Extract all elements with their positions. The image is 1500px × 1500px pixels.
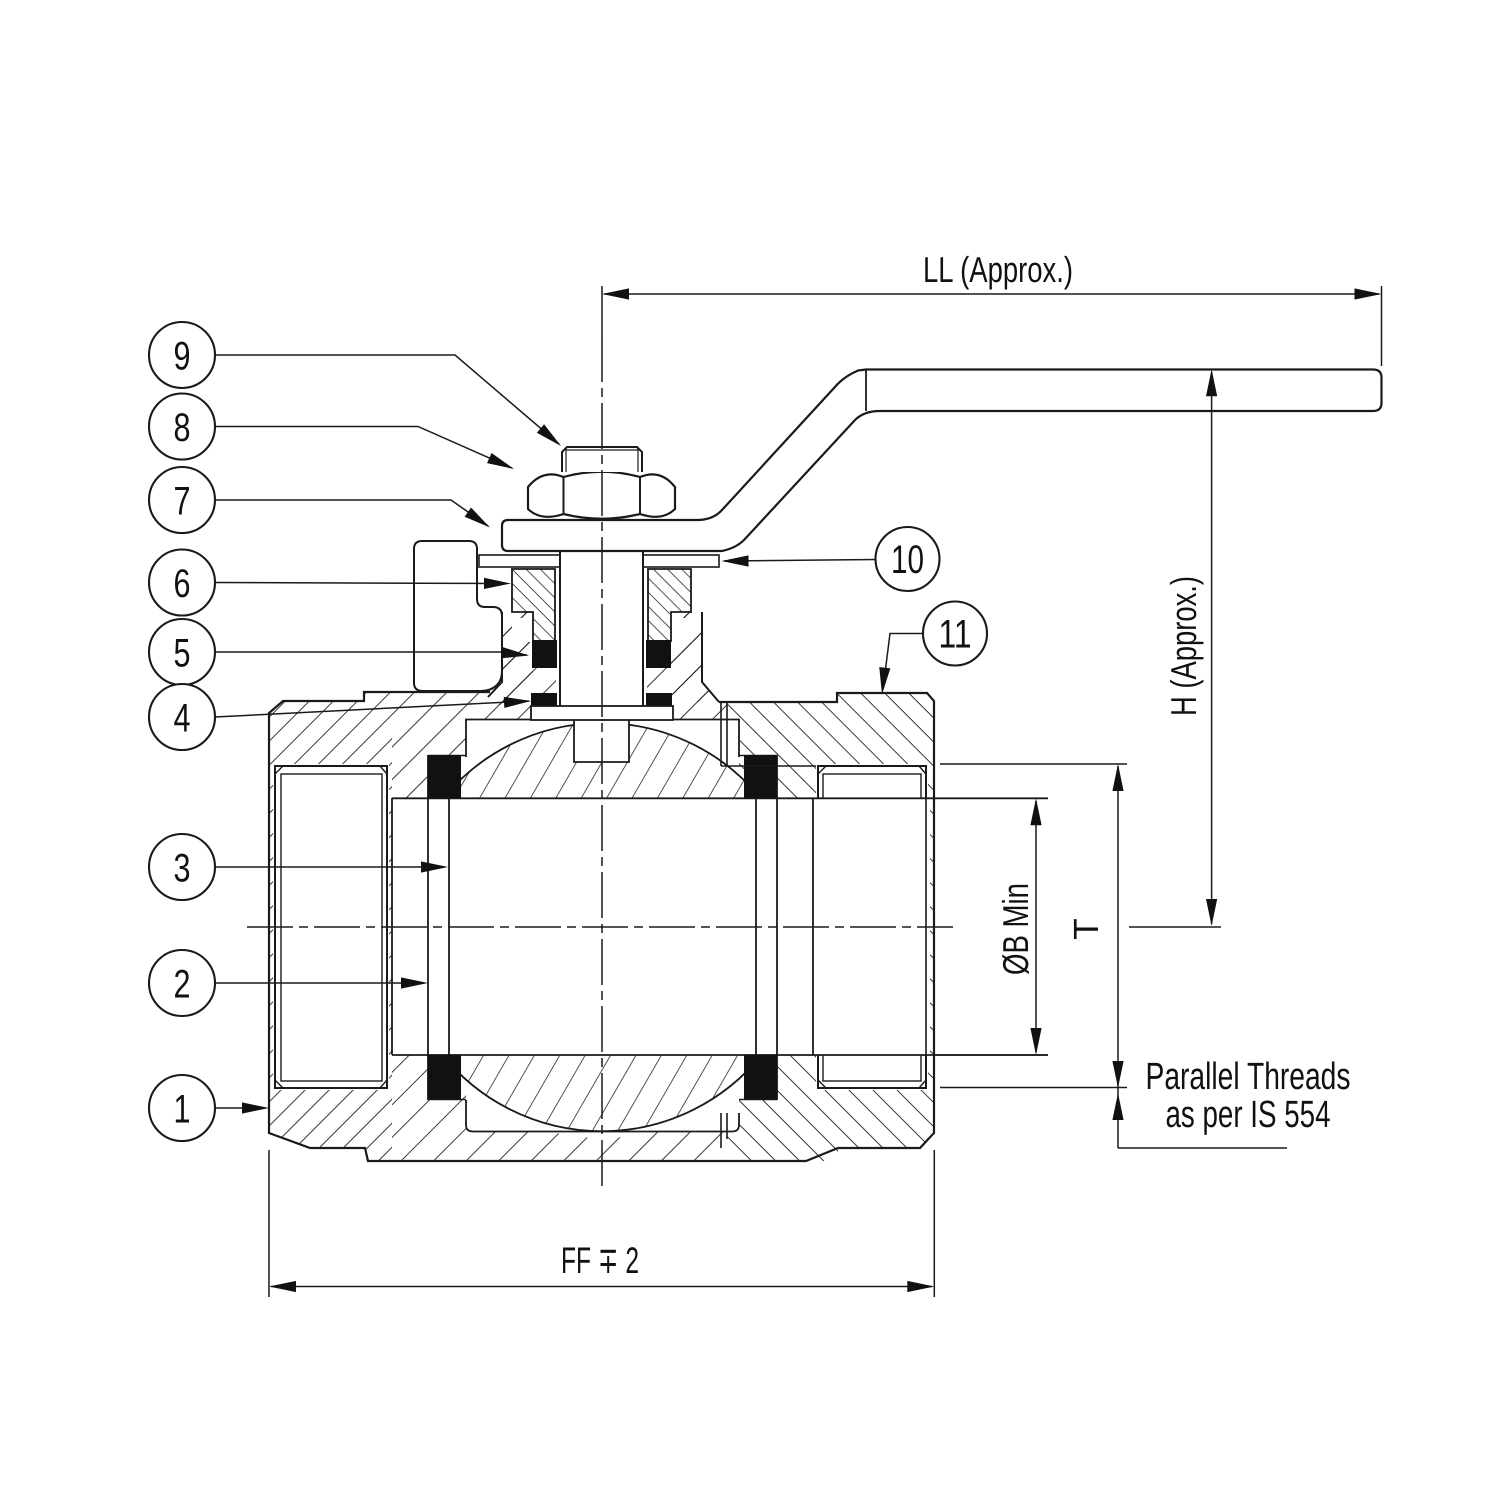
svg-text:LL (Approx.): LL (Approx.) — [923, 249, 1073, 290]
svg-text:as per IS 554: as per IS 554 — [1166, 1094, 1331, 1136]
svg-text:4: 4 — [174, 697, 191, 741]
svg-text:7: 7 — [174, 480, 191, 524]
svg-text:3: 3 — [174, 847, 191, 891]
svg-text:ØB Min: ØB Min — [995, 883, 1036, 975]
svg-text:5: 5 — [174, 632, 191, 676]
svg-text:2: 2 — [174, 963, 191, 1007]
svg-text:6: 6 — [174, 562, 191, 606]
svg-text:Parallel Threads: Parallel Threads — [1146, 1056, 1351, 1098]
svg-text:9: 9 — [174, 335, 191, 379]
svg-text:8: 8 — [174, 406, 191, 450]
svg-text:H (Approx.): H (Approx.) — [1163, 576, 1204, 716]
svg-text:11: 11 — [939, 613, 972, 657]
svg-text:FF ∓ 2: FF ∓ 2 — [561, 1240, 639, 1281]
svg-text:10: 10 — [891, 538, 924, 582]
svg-text:T: T — [1067, 918, 1106, 939]
svg-text:1: 1 — [174, 1088, 191, 1132]
